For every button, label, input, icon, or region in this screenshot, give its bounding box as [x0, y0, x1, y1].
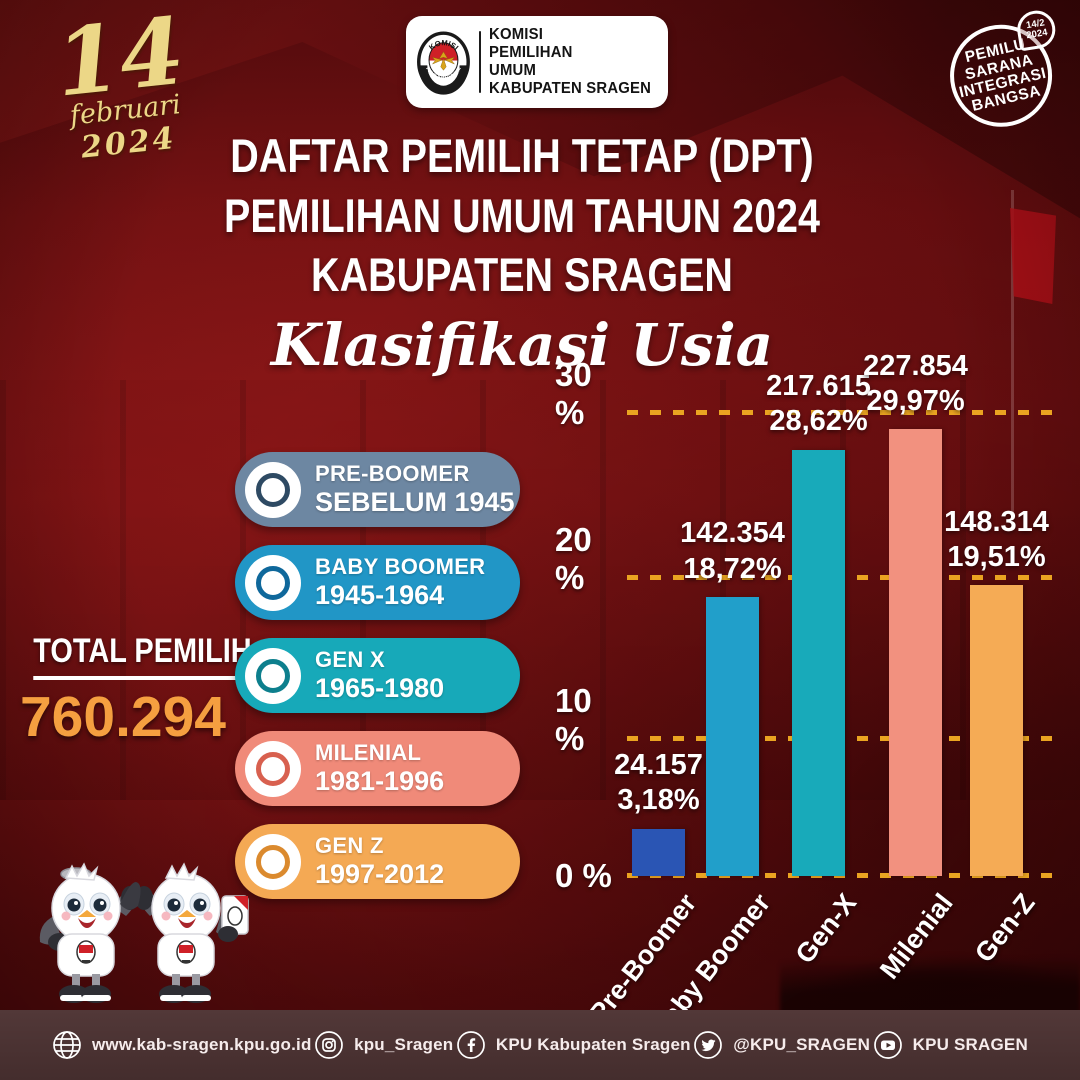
- org-line-1: KOMISI: [489, 26, 651, 44]
- total-voters-label: TOTAL PEMILIH: [33, 632, 251, 680]
- legend-range: 1981-1996: [315, 766, 444, 796]
- legend-bullet-icon: [245, 462, 301, 518]
- legend-bullet-icon: [245, 555, 301, 611]
- footer-instagram-label: kpu_Sragen: [354, 1035, 453, 1055]
- legend-label: MILENIAL: [315, 741, 444, 766]
- generation-legend: PRE-BOOMER SEBELUM 1945 BABY BOOMER 1945…: [235, 452, 520, 899]
- bar-value-label: 227.85429,97%: [831, 349, 1001, 420]
- bar-absolute-value: 227.854: [831, 349, 1001, 384]
- kpu-mascots-illustration: [16, 846, 260, 1016]
- kpu-logo-card: KOMISI PEMILIHAN UMUM KOMISI PEMILIHAN U…: [406, 16, 668, 108]
- org-line-2: PEMILIHAN: [489, 44, 651, 62]
- pemilu-slogan-badge: PEMILU SARANA INTEGRASI BANGSA 14/2 2024: [941, 8, 1070, 142]
- instagram-icon: [314, 1030, 344, 1060]
- kpu-seal-icon: KOMISI PEMILIHAN UMUM: [416, 19, 471, 105]
- legend-bullet-icon: [245, 648, 301, 704]
- age-classification-bar-chart: 0 %10 %20 %30 %24.1573,18%Pre-Boomer142.…: [555, 388, 1071, 876]
- legend-item-pre-boomer: PRE-BOOMER SEBELUM 1945: [235, 452, 520, 527]
- bar-gen-x: [792, 450, 845, 876]
- youtube-icon: [873, 1030, 903, 1060]
- footer-instagram: kpu_Sragen: [314, 1030, 453, 1060]
- twitter-icon: [693, 1030, 723, 1060]
- org-name: KOMISI PEMILIHAN UMUM KABUPATEN SRAGEN: [489, 26, 651, 98]
- footer-facebook: KPU Kabupaten Sragen: [456, 1030, 691, 1060]
- bar-pre-boomer: [632, 829, 685, 876]
- title-line-1: DAFTAR PEMILIH TETAP (DPT): [84, 126, 961, 186]
- org-line-3: UMUM: [489, 62, 651, 80]
- legend-bullet-icon: [245, 741, 301, 797]
- social-footer: www.kab-sragen.kpu.go.id kpu_Sragen KPU …: [0, 1010, 1080, 1080]
- bar-percentage-value: 29,97%: [831, 384, 1001, 419]
- legend-item-gen-x: GEN X 1965-1980: [235, 638, 520, 713]
- y-axis-tick-label: 10 %: [555, 682, 621, 758]
- total-voters-block: TOTAL PEMILIH 760.294: [14, 632, 232, 750]
- title-line-3: KABUPATEN SRAGEN: [84, 245, 961, 305]
- globe-icon: [52, 1030, 82, 1060]
- legend-label: BABY BOOMER: [315, 555, 485, 580]
- bubble-year: 2024: [1026, 28, 1048, 41]
- footer-website: www.kab-sragen.kpu.go.id: [52, 1030, 312, 1060]
- bar-milenial: [889, 429, 942, 876]
- footer-twitter: @KPU_SRAGEN: [693, 1030, 870, 1060]
- legend-item-gen-z: GEN Z 1997-2012: [235, 824, 520, 899]
- footer-facebook-label: KPU Kabupaten Sragen: [496, 1035, 691, 1055]
- legend-label: PRE-BOOMER: [315, 462, 515, 487]
- footer-youtube: KPU SRAGEN: [873, 1030, 1028, 1060]
- legend-range: 1997-2012: [315, 859, 444, 889]
- legend-range: 1965-1980: [315, 673, 444, 703]
- footer-youtube-label: KPU SRAGEN: [913, 1035, 1028, 1055]
- bar-absolute-value: 148.314: [912, 505, 1080, 540]
- legend-range: 1945-1964: [315, 580, 485, 610]
- y-axis-tick-label: 20 %: [555, 521, 621, 597]
- org-line-4: KABUPATEN SRAGEN: [489, 80, 651, 98]
- legend-item-baby-boomer: BABY BOOMER 1945-1964: [235, 545, 520, 620]
- logo-divider: [479, 31, 481, 93]
- bar-baby boomer: [706, 597, 759, 876]
- y-axis-tick-label: 30 %: [555, 356, 621, 432]
- bar-value-label: 148.31419,51%: [912, 505, 1080, 576]
- legend-label: GEN Z: [315, 834, 444, 859]
- infographic-poster: 14 februari 2024 KOMISI: [0, 0, 1080, 1080]
- legend-item-milenial: MILENIAL 1981-1996: [235, 731, 520, 806]
- legend-range: SEBELUM 1945: [315, 487, 515, 517]
- y-axis-tick-label: 0 %: [555, 857, 621, 895]
- title-line-2: PEMILIHAN UMUM TAHUN 2024: [84, 186, 961, 246]
- footer-twitter-label: @KPU_SRAGEN: [733, 1035, 870, 1055]
- footer-website-label: www.kab-sragen.kpu.go.id: [92, 1035, 312, 1055]
- total-voters-value: 760.294: [14, 684, 232, 750]
- facebook-icon: [456, 1030, 486, 1060]
- date-bubble: 14/2 2024: [1015, 8, 1058, 51]
- bar-gen-z: [970, 585, 1023, 876]
- bar-percentage-value: 19,51%: [912, 540, 1080, 575]
- poster-title: DAFTAR PEMILIH TETAP (DPT) PEMILIHAN UMU…: [0, 126, 1044, 379]
- legend-label: GEN X: [315, 648, 444, 673]
